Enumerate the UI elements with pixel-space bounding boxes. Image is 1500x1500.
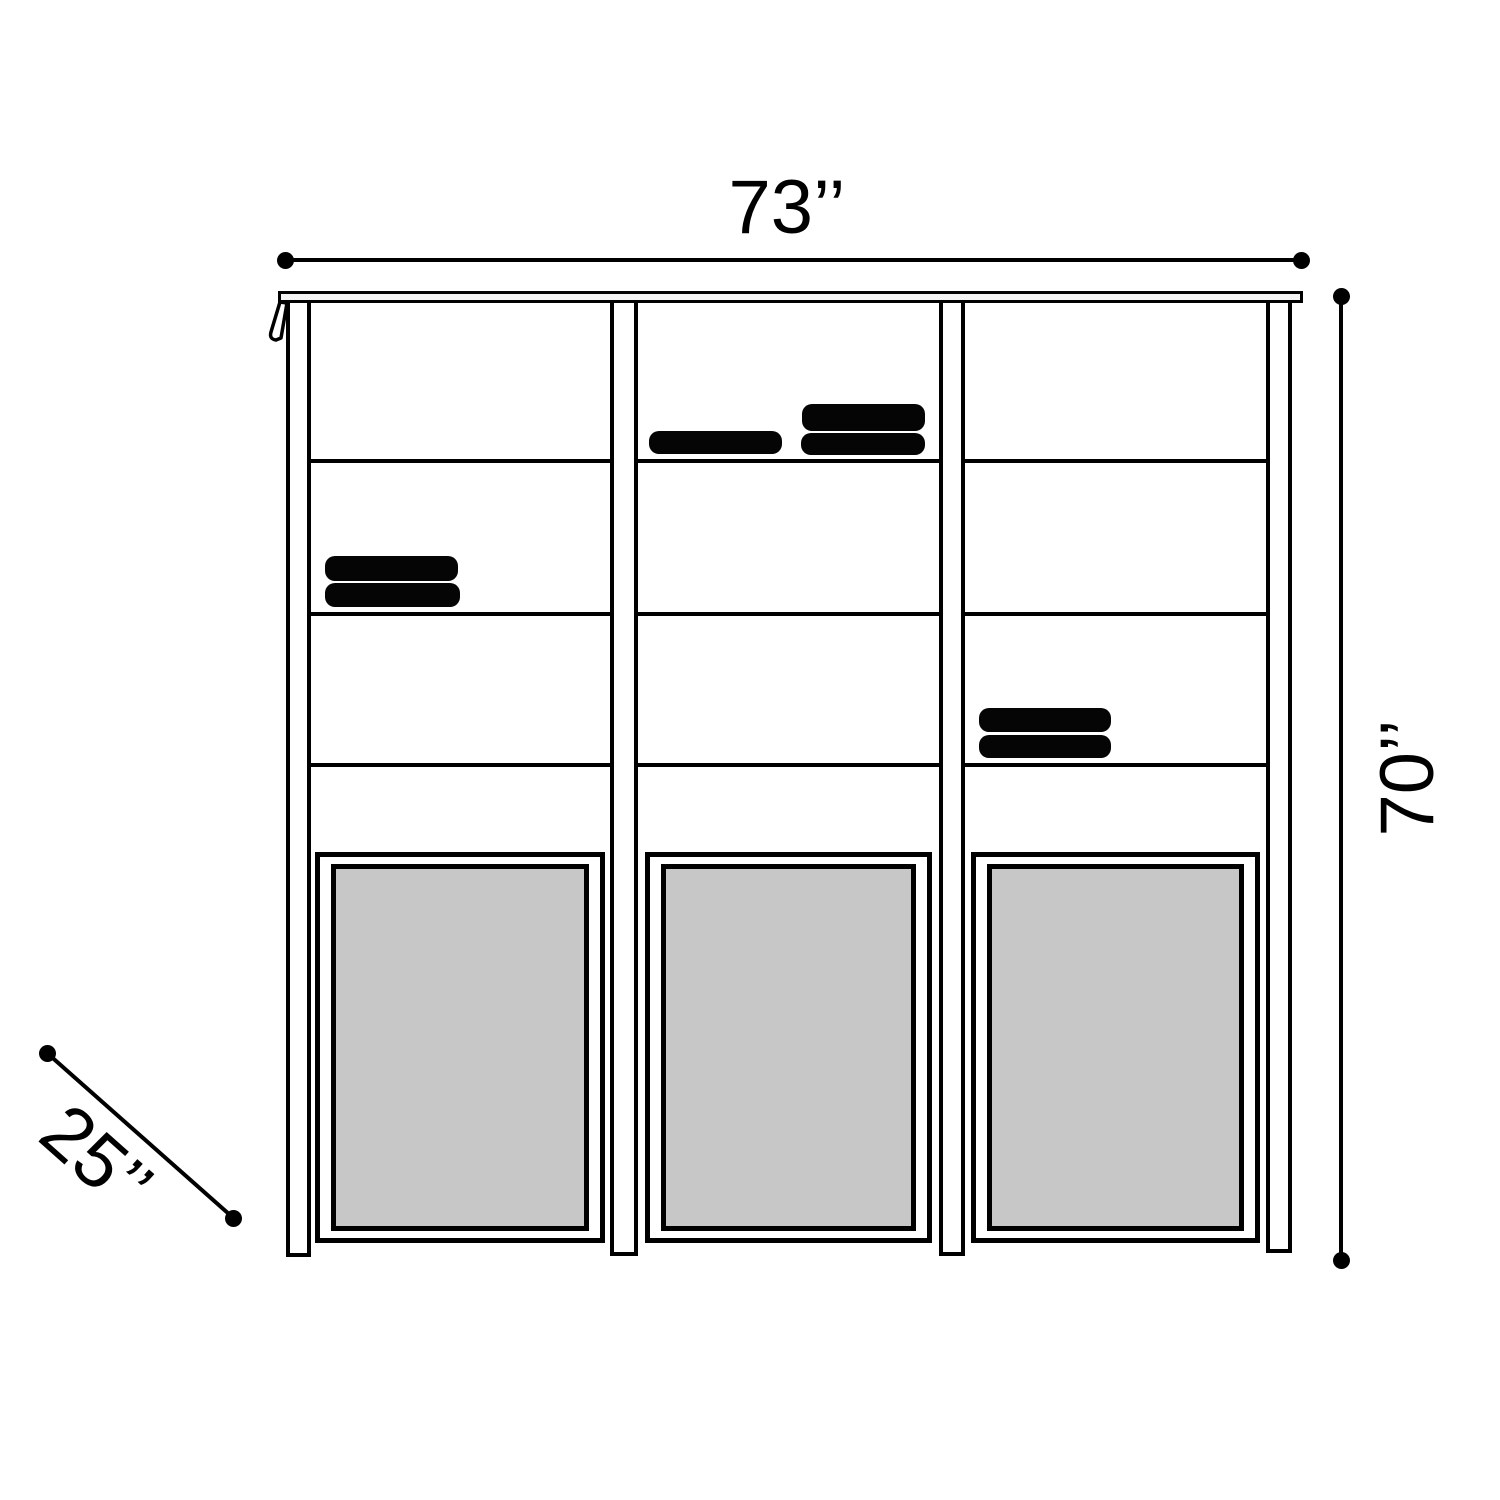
top-board — [278, 291, 1303, 303]
top-left-edge-flap — [267, 297, 293, 345]
book-right-section-top — [979, 708, 1111, 732]
width-dimension-endpoint-right-dot — [1293, 252, 1310, 269]
shelf-line-row-3 — [300, 763, 1278, 767]
cabinet-door-left — [315, 852, 605, 1243]
height-dimension-label: 70’’ — [1368, 688, 1448, 868]
book-right-section-bottom — [979, 735, 1111, 758]
width-dimension-line — [285, 258, 1302, 262]
left-side-panel-post — [286, 302, 311, 1257]
book-left-section-bottom — [325, 583, 460, 607]
book-middle-section-stack-top — [802, 404, 925, 431]
shelf-line-row-2 — [300, 612, 1278, 616]
cabinet-door-right — [971, 852, 1260, 1243]
cabinet-door-middle-panel — [661, 864, 916, 1231]
depth-dimension-endpoint-top-dot — [39, 1045, 56, 1062]
right-side-panel-post — [1266, 302, 1292, 1253]
height-dimension-endpoint-top-dot — [1333, 288, 1350, 305]
depth-dimension-endpoint-bottom-dot — [225, 1210, 242, 1227]
book-middle-section-stack-bottom — [801, 433, 925, 455]
width-dimension-label: 73’’ — [697, 168, 877, 248]
shelf-line-row-1 — [300, 459, 1278, 463]
height-dimension-endpoint-bottom-dot — [1333, 1252, 1350, 1269]
divider-post-1 — [610, 302, 638, 1256]
divider-post-2 — [939, 302, 965, 1256]
cabinet-door-middle — [645, 852, 932, 1243]
cabinet-door-left-panel — [331, 864, 589, 1231]
cabinet-door-right-panel — [987, 864, 1244, 1231]
width-dimension-endpoint-left-dot — [277, 252, 294, 269]
height-dimension-line — [1339, 296, 1343, 1260]
book-middle-section-single — [649, 431, 782, 454]
book-left-section-top — [325, 556, 458, 581]
dimension-diagram-canvas: 73’’ 70’’ 25’’ — [0, 0, 1500, 1500]
